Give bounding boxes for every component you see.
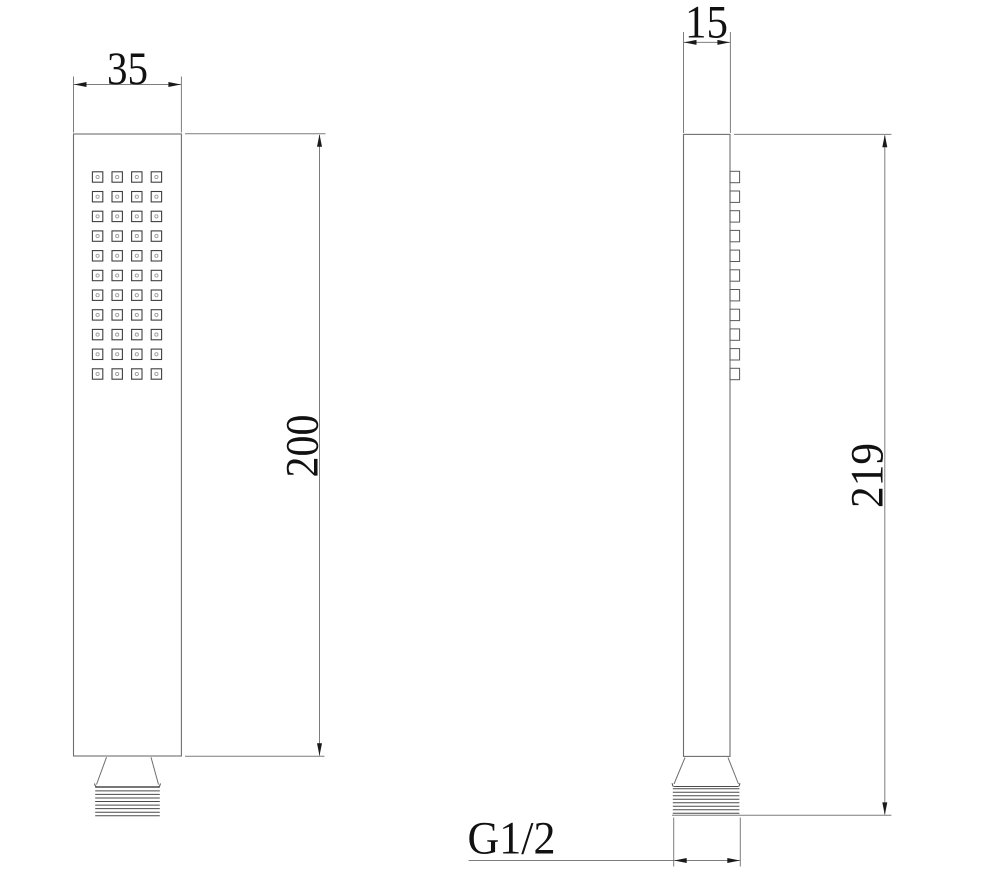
svg-text:219: 219: [842, 443, 894, 508]
svg-text:35: 35: [107, 43, 148, 95]
svg-text:200: 200: [277, 415, 329, 478]
svg-text:G1/2: G1/2: [468, 813, 556, 865]
svg-text:15: 15: [685, 0, 728, 49]
